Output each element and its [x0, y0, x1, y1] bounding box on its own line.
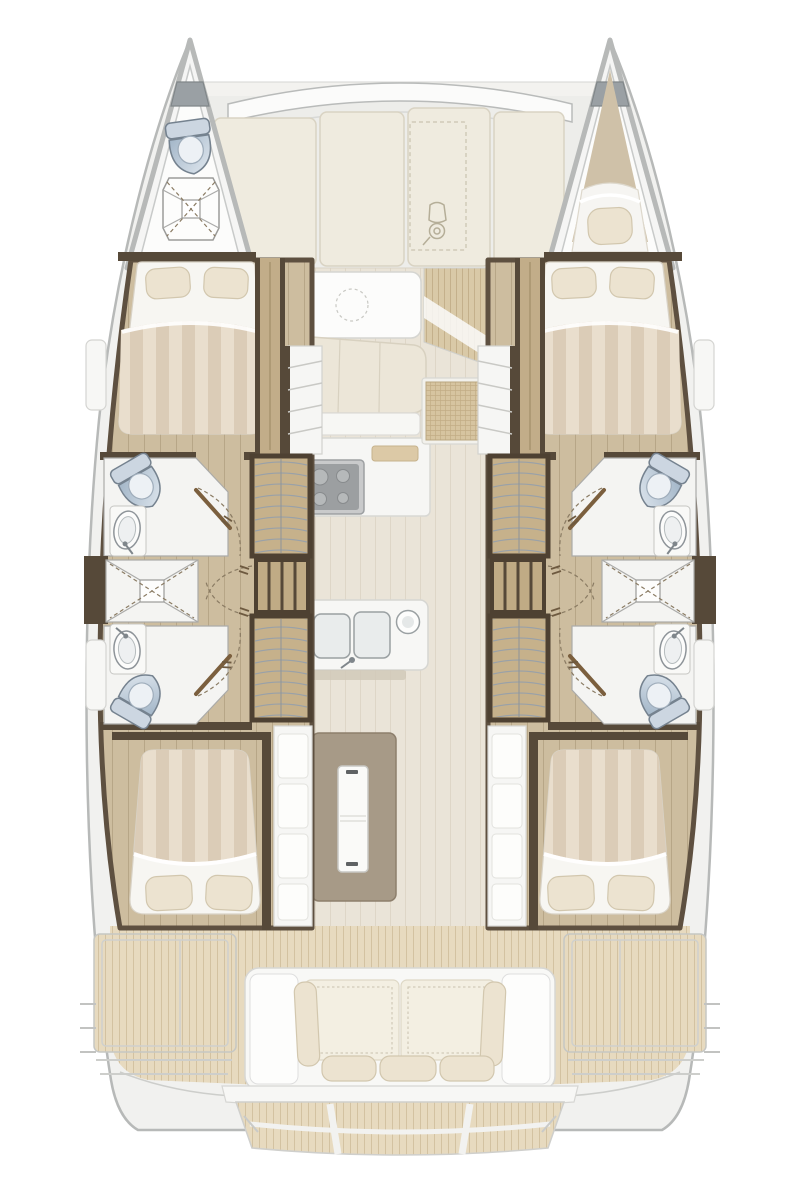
galley-sink-counter: [302, 600, 428, 680]
bolster-pillow: [480, 981, 506, 1066]
galley-island: [312, 733, 396, 901]
sunpad-panel: [408, 108, 490, 266]
fridge-unit: [338, 766, 368, 872]
dining-table: [301, 272, 421, 338]
pillow: [587, 207, 633, 245]
bow-shower-pan: [163, 178, 219, 240]
catamaran-floor-plan: [0, 0, 800, 1200]
sunpad-panel: [320, 112, 404, 266]
seat-pillow: [380, 1056, 436, 1081]
anchor-locker: [171, 82, 209, 106]
sink-basin: [314, 614, 350, 658]
seat-pillow: [322, 1056, 376, 1081]
bow-single-berth: [572, 183, 648, 252]
bolster-pillow: [294, 981, 320, 1066]
floor-plan-page: [0, 0, 800, 1200]
cockpit-bench: [245, 968, 555, 1090]
sink-basin: [354, 612, 390, 658]
swim-platform: [222, 1086, 578, 1155]
seat-pillow: [440, 1056, 494, 1081]
